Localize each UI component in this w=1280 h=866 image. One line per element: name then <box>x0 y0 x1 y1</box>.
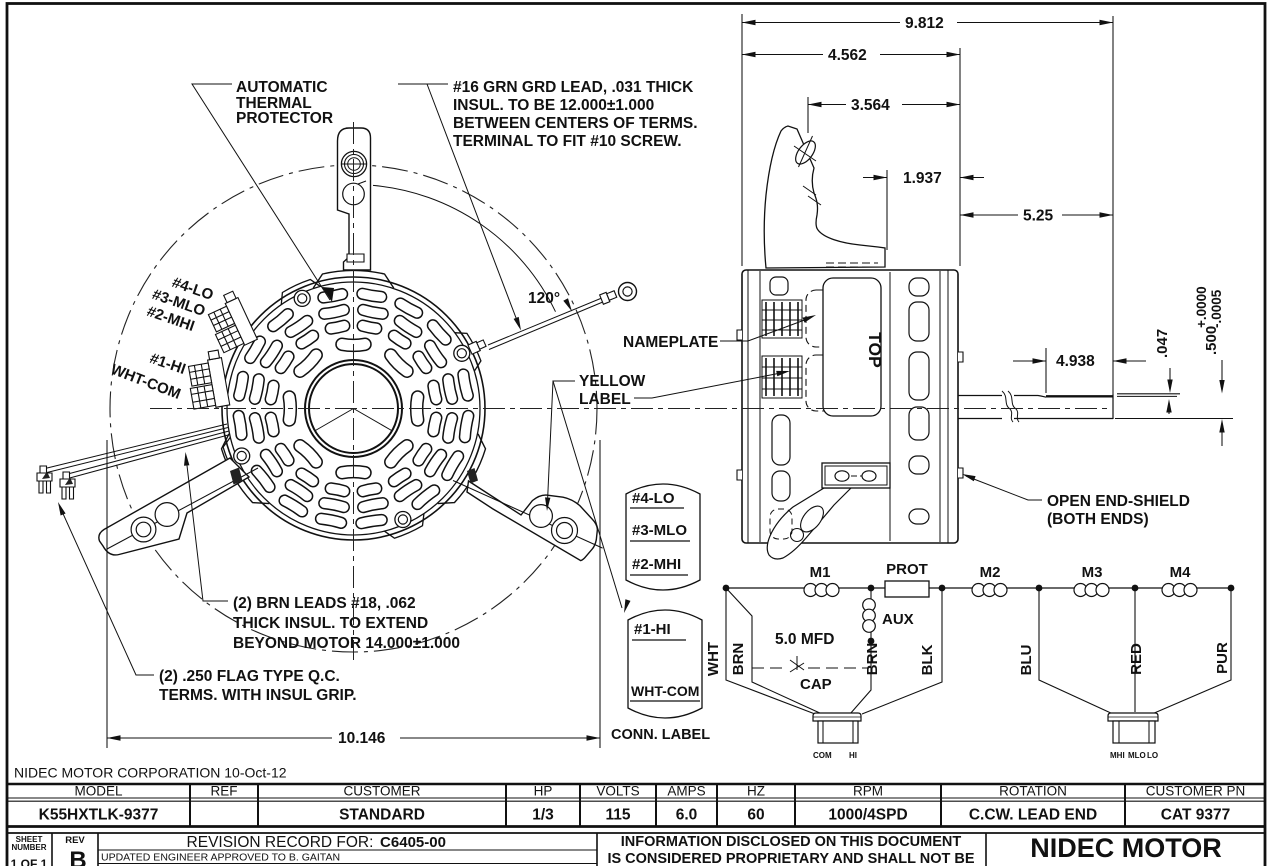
svg-text:BEYOND MOTOR 14.000±1.000: BEYOND MOTOR 14.000±1.000 <box>233 635 460 652</box>
svg-text:1000/4SPD: 1000/4SPD <box>828 807 907 824</box>
svg-text:#1-HI: #1-HI <box>634 621 671 638</box>
svg-text:M3: M3 <box>1082 564 1103 581</box>
svg-text:TERMINAL TO FIT #10 SCREW.: TERMINAL TO FIT #10 SCREW. <box>453 133 682 150</box>
svg-text:C.CW. LEAD END: C.CW. LEAD END <box>969 807 1097 824</box>
svg-text:AMPS: AMPS <box>667 784 705 799</box>
svg-text:BRN: BRN <box>864 643 881 676</box>
svg-text:VOLTS: VOLTS <box>596 784 639 799</box>
svg-text:STANDARD: STANDARD <box>339 807 425 824</box>
svg-text:HZ: HZ <box>747 784 765 799</box>
svg-text:.500: .500 <box>1203 326 1220 355</box>
svg-text:RPM: RPM <box>853 784 883 799</box>
svg-text:(2) BRN LEADS #18, .062: (2) BRN LEADS #18, .062 <box>233 595 416 612</box>
svg-text:LABEL: LABEL <box>579 391 631 408</box>
svg-text:B: B <box>69 847 86 866</box>
svg-text:CONN. LABEL: CONN. LABEL <box>611 727 710 743</box>
svg-text:IS CONSIDERED PROPRIETARY AND: IS CONSIDERED PROPRIETARY AND SHALL NOT … <box>607 851 974 866</box>
svg-text:CAT 9377: CAT 9377 <box>1161 807 1231 824</box>
svg-text:60: 60 <box>747 807 764 824</box>
svg-text:NIDEC MOTOR: NIDEC MOTOR <box>1030 833 1222 863</box>
svg-text:YELLOW: YELLOW <box>579 373 646 390</box>
svg-text:UPDATED ENGINEER APPROVED TO B: UPDATED ENGINEER APPROVED TO B. GAITAN <box>101 852 340 864</box>
svg-text:MLO: MLO <box>1128 751 1146 760</box>
svg-text:(BOTH ENDS): (BOTH ENDS) <box>1047 511 1149 528</box>
svg-text:THICK INSUL. TO EXTEND: THICK INSUL. TO EXTEND <box>233 615 428 632</box>
svg-text:1/3: 1/3 <box>532 807 554 824</box>
svg-text:OPEN END-SHIELD: OPEN END-SHIELD <box>1047 493 1190 510</box>
svg-text:CUSTOMER: CUSTOMER <box>343 784 420 799</box>
svg-text:#3-MLO: #3-MLO <box>632 522 687 539</box>
svg-text:COM: COM <box>813 751 832 760</box>
svg-text:M4: M4 <box>1170 564 1191 581</box>
svg-text:REF: REF <box>211 784 238 799</box>
svg-text:3.564: 3.564 <box>851 97 890 114</box>
svg-text:BLK: BLK <box>919 644 936 675</box>
svg-text:K55HXTLK-9377: K55HXTLK-9377 <box>39 807 159 824</box>
svg-text:PROTECTOR: PROTECTOR <box>236 110 333 127</box>
svg-text:AUX: AUX <box>882 611 914 628</box>
svg-text:LO: LO <box>1147 751 1158 760</box>
svg-text:HP: HP <box>534 784 553 799</box>
svg-text:+.0000: +.0000 <box>1194 286 1209 328</box>
svg-text:WHT-COM: WHT-COM <box>631 683 699 699</box>
svg-text:BRN: BRN <box>730 643 747 676</box>
svg-text:MHI: MHI <box>1110 751 1125 760</box>
svg-text:6.0: 6.0 <box>676 807 698 824</box>
svg-text:1.937: 1.937 <box>903 170 942 187</box>
svg-text:TOP: TOP <box>865 332 885 368</box>
svg-text:TERMS. WITH INSUL GRIP.: TERMS. WITH INSUL GRIP. <box>159 687 357 704</box>
svg-text:REVISION RECORD FOR:: REVISION RECORD FOR: <box>187 834 374 851</box>
svg-text:INFORMATION DISCLOSED ON THIS: INFORMATION DISCLOSED ON THIS DOCUMENT <box>621 834 962 850</box>
svg-text:ROTATION: ROTATION <box>999 784 1067 799</box>
svg-text:CAP: CAP <box>800 676 832 693</box>
svg-text:4.938: 4.938 <box>1056 353 1095 370</box>
svg-text:(2) .250 FLAG TYPE Q.C.: (2) .250 FLAG TYPE Q.C. <box>159 668 340 685</box>
svg-text:4.562: 4.562 <box>828 47 867 64</box>
svg-text:CUSTOMER PN: CUSTOMER PN <box>1146 784 1246 799</box>
svg-text:M1: M1 <box>810 564 831 581</box>
svg-text:5.0 MFD: 5.0 MFD <box>775 631 834 648</box>
svg-text:9.812: 9.812 <box>905 15 944 32</box>
svg-text:AUTOMATIC: AUTOMATIC <box>236 79 328 96</box>
svg-text:1 OF 1: 1 OF 1 <box>11 857 48 866</box>
svg-text:115: 115 <box>605 807 630 824</box>
svg-text:REV: REV <box>65 835 85 846</box>
svg-text:-.0005: -.0005 <box>1209 289 1224 328</box>
svg-text:#16 GRN GRD LEAD, .031 THICK: #16 GRN GRD LEAD, .031 THICK <box>453 79 694 96</box>
svg-text:BETWEEN CENTERS OF TERMS.: BETWEEN CENTERS OF TERMS. <box>453 115 698 132</box>
svg-text:C6405-00: C6405-00 <box>380 834 446 851</box>
svg-text:#2-MHI: #2-MHI <box>632 556 681 573</box>
svg-text:10.146: 10.146 <box>338 730 386 747</box>
svg-text:INSUL. TO BE 12.000±1.000: INSUL. TO BE 12.000±1.000 <box>453 97 654 114</box>
svg-text:#4-LO: #4-LO <box>632 490 675 507</box>
svg-text:NIDEC MOTOR CORPORATION 10-Oct: NIDEC MOTOR CORPORATION 10-Oct-12 <box>14 765 287 781</box>
svg-text:120°: 120° <box>528 290 560 307</box>
svg-text:NUMBER: NUMBER <box>11 843 46 852</box>
svg-text:HI: HI <box>849 751 857 760</box>
svg-text:WHT: WHT <box>705 642 722 676</box>
svg-text:PROT: PROT <box>886 561 928 578</box>
svg-text:5.25: 5.25 <box>1023 208 1054 225</box>
svg-text:NAMEPLATE: NAMEPLATE <box>623 334 718 351</box>
svg-text:.047: .047 <box>1154 329 1171 358</box>
svg-text:PUR: PUR <box>1214 642 1231 674</box>
svg-text:BLU: BLU <box>1018 645 1035 676</box>
svg-text:MODEL: MODEL <box>74 784 123 799</box>
svg-text:RED: RED <box>1128 643 1145 675</box>
svg-text:M2: M2 <box>980 564 1001 581</box>
